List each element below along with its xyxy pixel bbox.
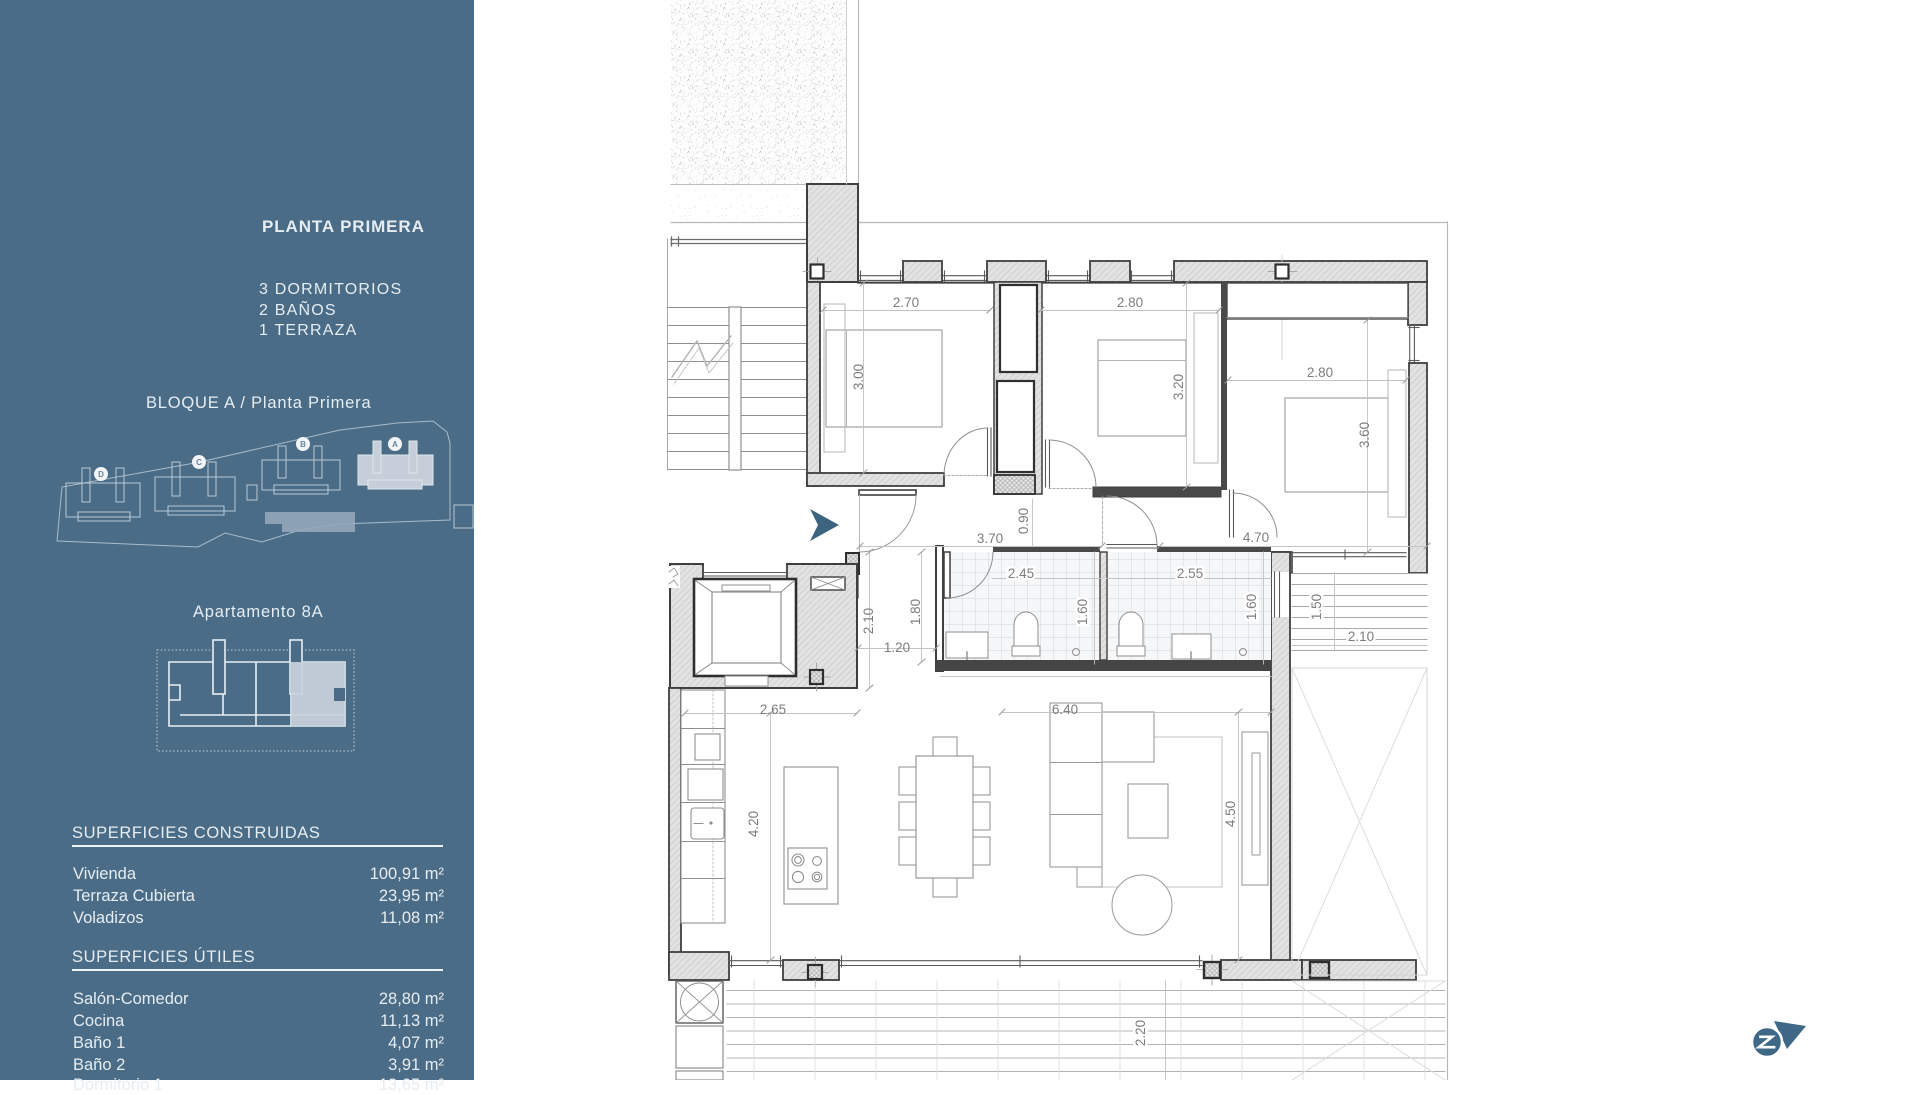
svg-text:1.80: 1.80	[908, 599, 923, 625]
svg-text:6.40: 6.40	[1052, 702, 1078, 717]
svg-text:1.50: 1.50	[1309, 594, 1324, 620]
svg-text:2.80: 2.80	[1307, 365, 1333, 380]
svg-text:4.70: 4.70	[1243, 530, 1269, 545]
svg-text:4.50: 4.50	[1223, 801, 1238, 827]
svg-text:1.60: 1.60	[1244, 594, 1259, 620]
svg-text:3.20: 3.20	[1171, 374, 1186, 400]
svg-text:1.20: 1.20	[884, 640, 910, 655]
svg-text:2.20: 2.20	[1133, 1020, 1148, 1046]
svg-text:2.10: 2.10	[861, 608, 876, 634]
svg-text:2.65: 2.65	[760, 702, 786, 717]
svg-text:3.70: 3.70	[977, 531, 1003, 546]
svg-text:2.45: 2.45	[1008, 566, 1034, 581]
svg-text:3.00: 3.00	[851, 364, 866, 390]
svg-text:1.60: 1.60	[1075, 599, 1090, 625]
svg-text:2.10: 2.10	[1348, 629, 1374, 644]
svg-text:3.60: 3.60	[1357, 422, 1372, 448]
svg-text:2.55: 2.55	[1177, 566, 1203, 581]
svg-text:2.70: 2.70	[893, 295, 919, 310]
svg-text:4.20: 4.20	[746, 811, 761, 837]
svg-text:2.80: 2.80	[1117, 295, 1143, 310]
svg-text:0.90: 0.90	[1016, 508, 1031, 534]
